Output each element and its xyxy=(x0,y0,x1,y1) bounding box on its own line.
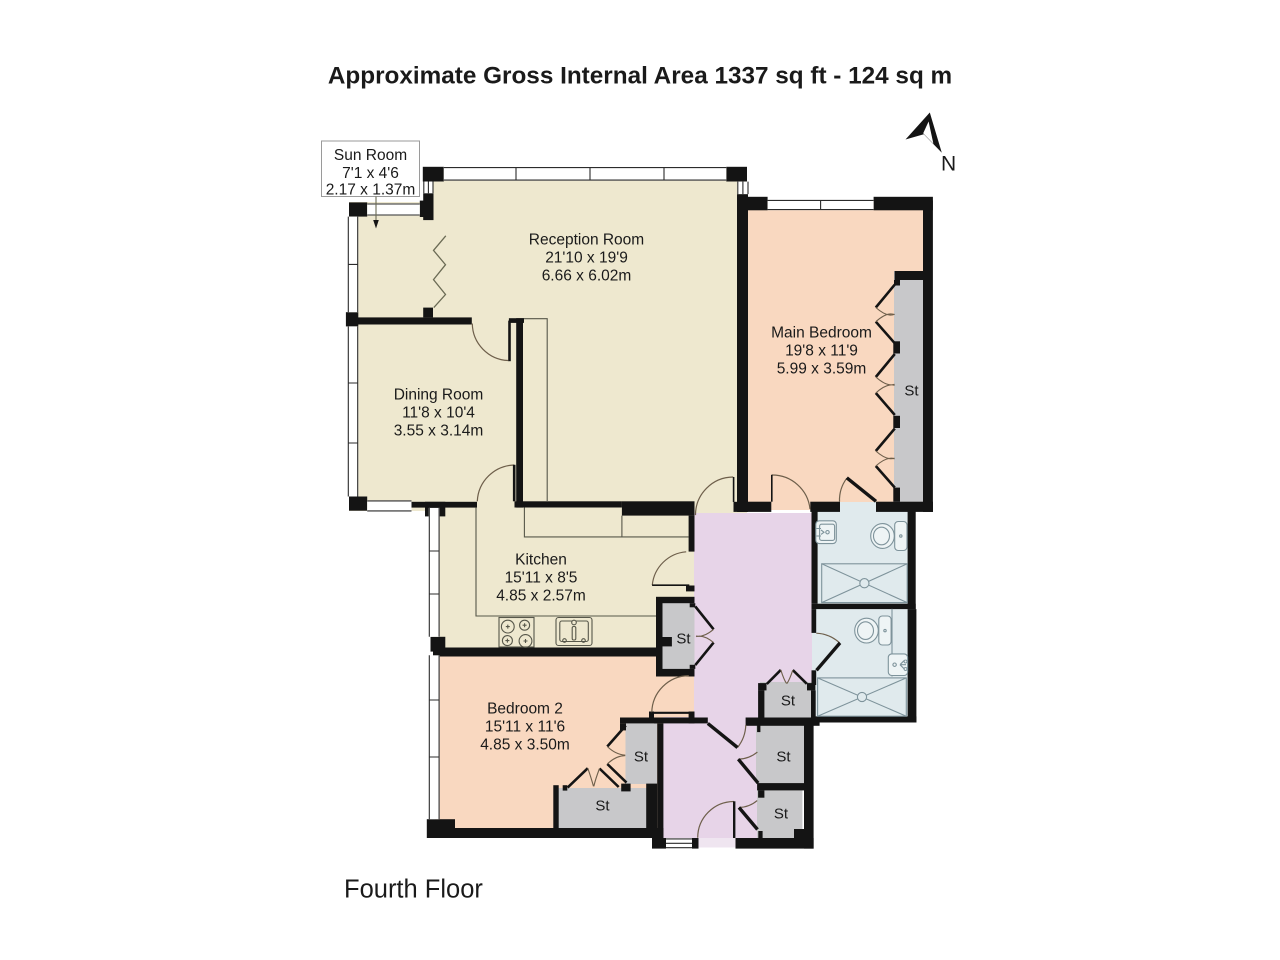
svg-text:Main Bedroom: Main Bedroom xyxy=(771,325,872,342)
svg-text:Reception Room: Reception Room xyxy=(529,232,644,249)
svg-text:21'10 x 19'9: 21'10 x 19'9 xyxy=(545,250,628,267)
svg-text:Dining Room: Dining Room xyxy=(394,387,484,404)
svg-text:Approximate Gross Internal Are: Approximate Gross Internal Area 1337 sq … xyxy=(328,63,952,90)
svg-text:7'1 x 4'6: 7'1 x 4'6 xyxy=(342,165,399,182)
svg-text:St: St xyxy=(776,749,791,766)
svg-text:15'11 x 8'5: 15'11 x 8'5 xyxy=(505,570,578,587)
svg-text:4.85 x 2.57m: 4.85 x 2.57m xyxy=(496,588,586,605)
svg-text:St: St xyxy=(676,631,691,648)
svg-text:St: St xyxy=(904,383,919,400)
svg-text:St: St xyxy=(781,693,796,710)
svg-text:2.17 x 1.37m: 2.17 x 1.37m xyxy=(326,182,416,199)
svg-text:St: St xyxy=(595,798,610,815)
svg-text:Fourth Floor: Fourth Floor xyxy=(344,876,483,904)
svg-text:15'11 x 11'6: 15'11 x 11'6 xyxy=(485,719,565,736)
svg-text:Sun Room: Sun Room xyxy=(334,147,407,164)
svg-text:6.66 x 6.02m: 6.66 x 6.02m xyxy=(542,268,632,285)
svg-text:Kitchen: Kitchen xyxy=(515,552,567,569)
svg-text:5.99 x 3.59m: 5.99 x 3.59m xyxy=(777,361,867,378)
svg-text:4.85 x 3.50m: 4.85 x 3.50m xyxy=(480,737,570,754)
svg-text:11'8 x 10'4: 11'8 x 10'4 xyxy=(402,405,475,422)
svg-text:St: St xyxy=(774,806,789,823)
svg-text:19'8 x 11'9: 19'8 x 11'9 xyxy=(785,343,858,360)
svg-text:Bedroom 2: Bedroom 2 xyxy=(487,701,563,718)
svg-text:N: N xyxy=(941,153,956,176)
svg-text:3.55 x 3.14m: 3.55 x 3.14m xyxy=(394,423,484,440)
svg-text:St: St xyxy=(634,749,649,766)
